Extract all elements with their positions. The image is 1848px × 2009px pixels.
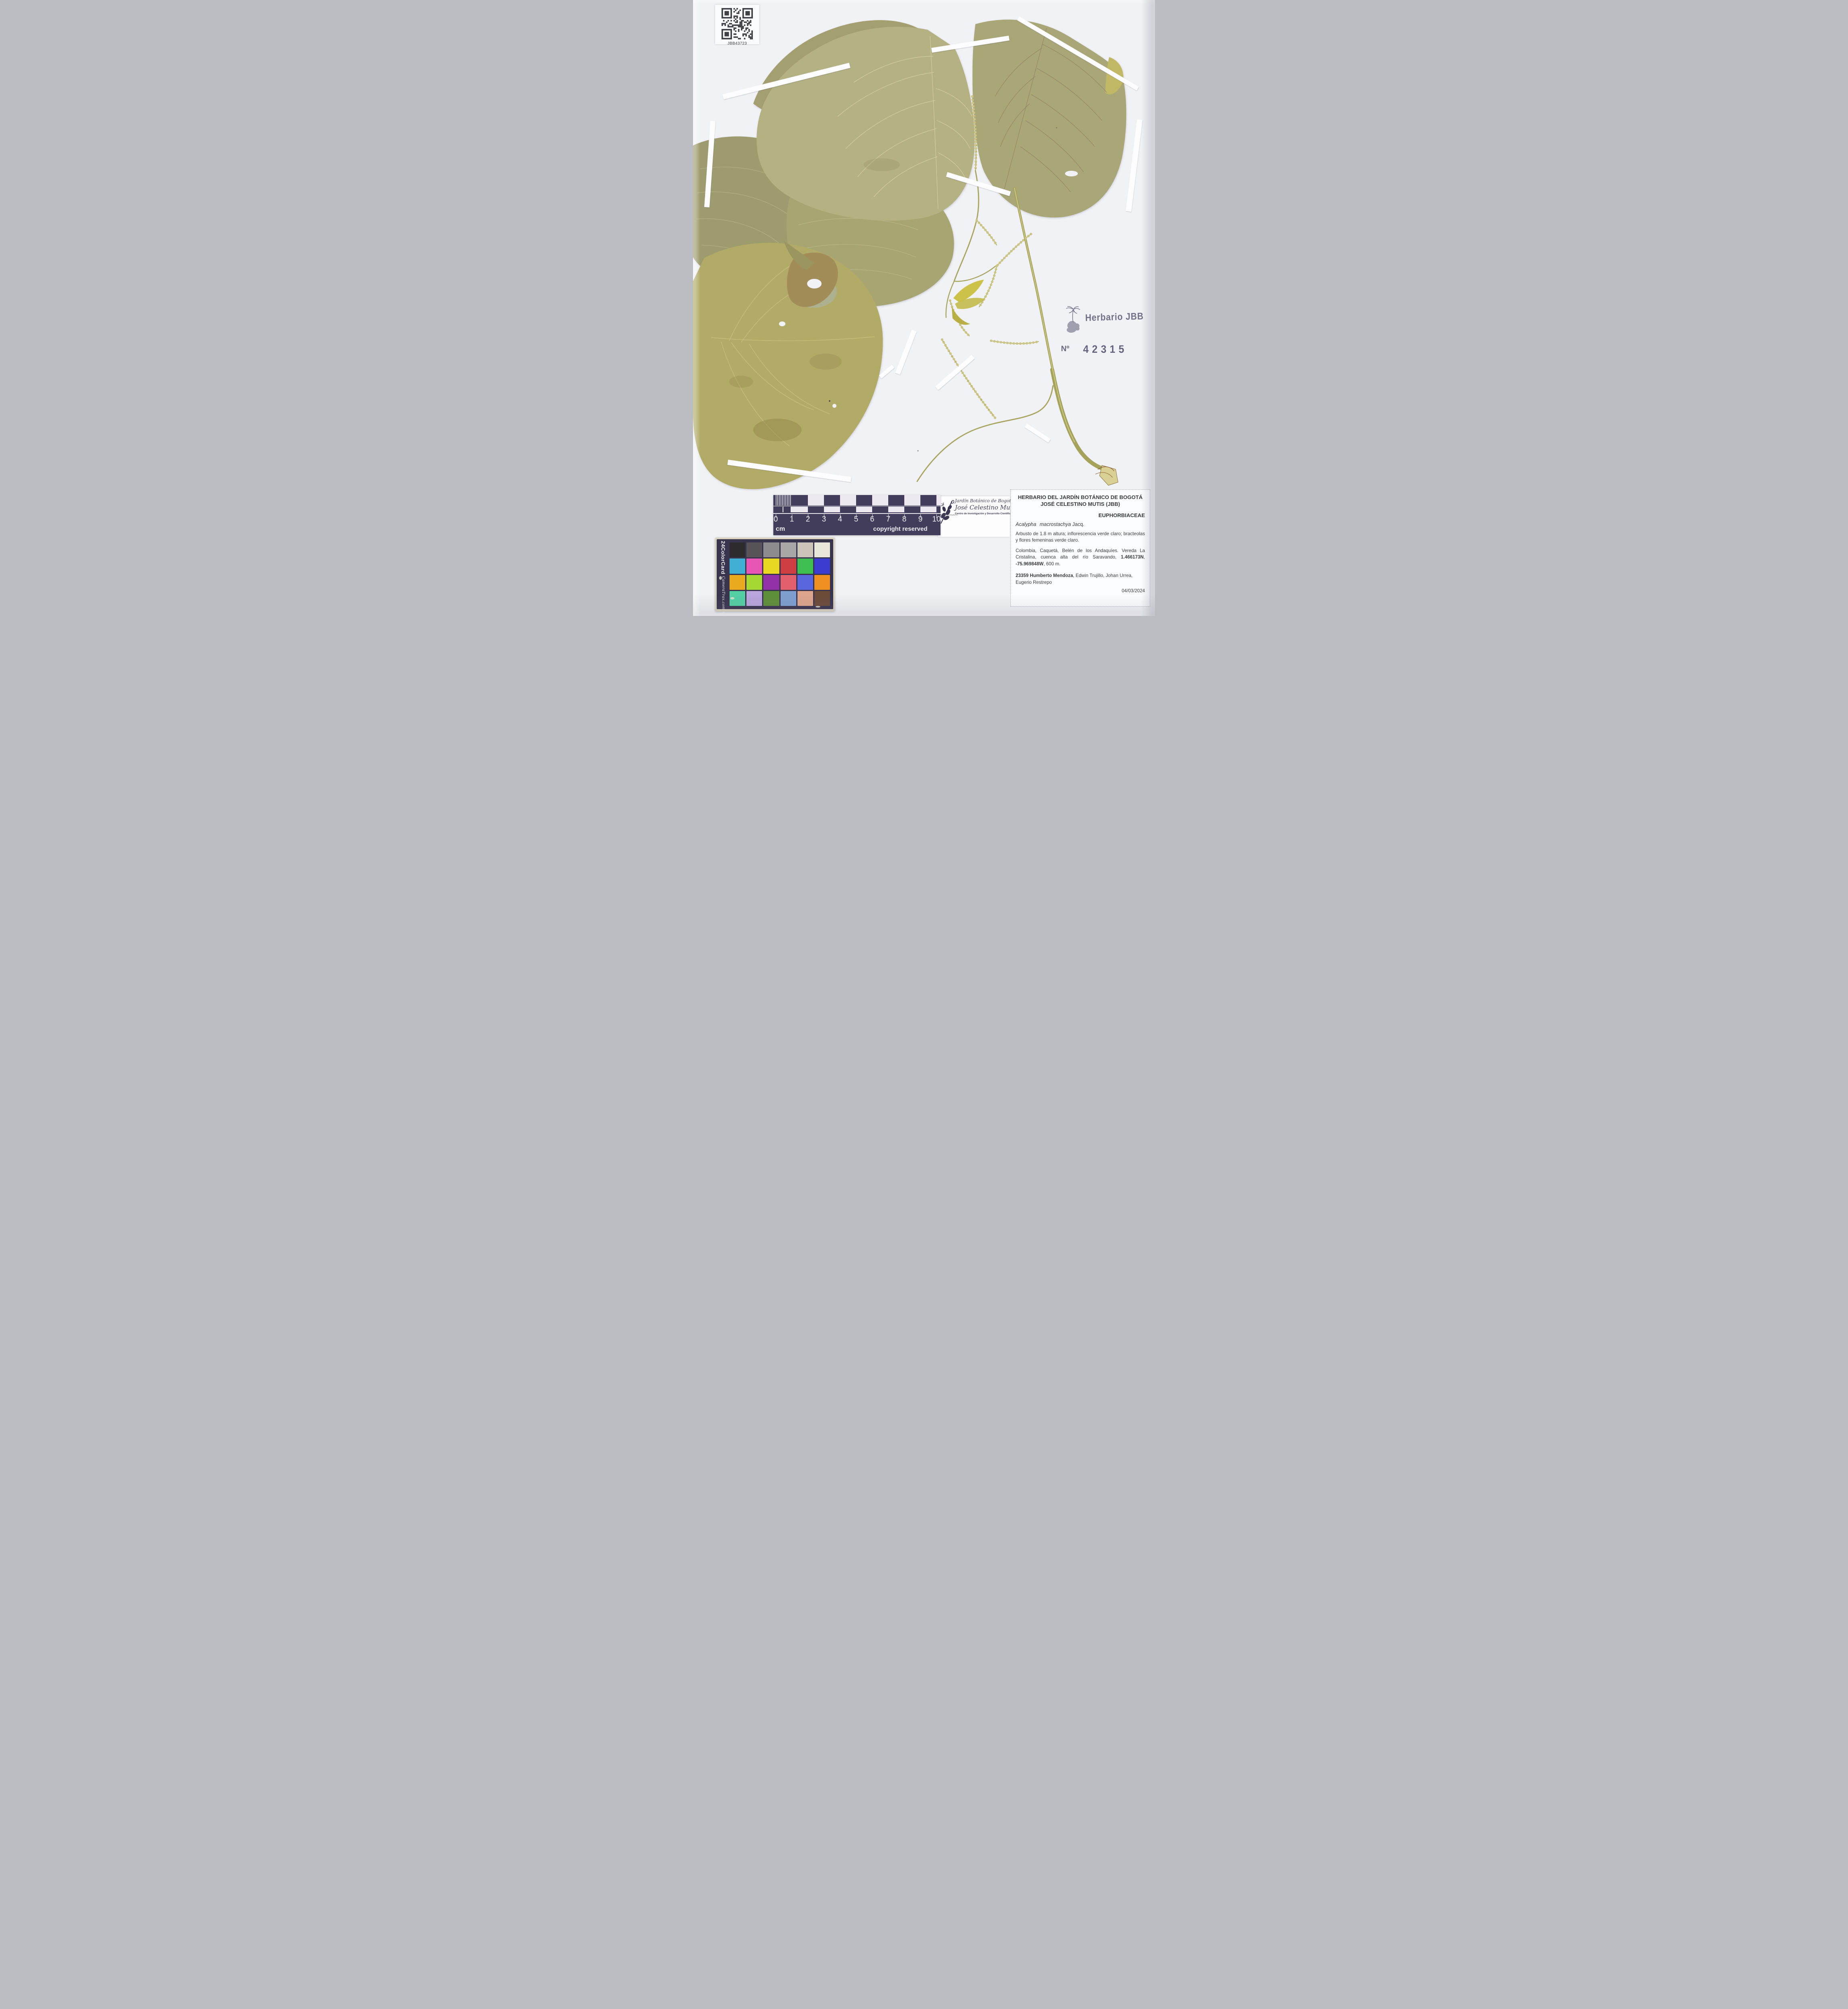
collector-number-name: 23359 Humberto Mendoza bbox=[1016, 573, 1073, 578]
color-swatch bbox=[730, 559, 745, 573]
scale-unit-label: cm bbox=[776, 526, 785, 533]
color-swatch bbox=[730, 542, 745, 557]
scale-number: 8 bbox=[899, 515, 910, 524]
logo-illustration-caption: Mutisia clematis L. bbox=[939, 514, 958, 516]
color-card-title: 24ColorCard bbox=[720, 541, 726, 575]
color-swatch bbox=[746, 559, 762, 573]
color-swatch bbox=[814, 559, 830, 573]
label-description: Arbusto de 1.8 m altura; inflorescencia … bbox=[1016, 531, 1145, 544]
color-swatch bbox=[814, 591, 830, 606]
label-family: EUPHORBIACEAE bbox=[1016, 512, 1145, 518]
color-swatch bbox=[814, 542, 830, 557]
label-species-line: Acalypha macrostachya Jacq. bbox=[1016, 522, 1145, 527]
palm-tree-icon bbox=[1065, 306, 1081, 334]
color-card-brand: CameraTrax.com bbox=[721, 576, 725, 610]
scale-bar-band1 bbox=[773, 495, 940, 505]
color-swatch-grid bbox=[730, 542, 830, 606]
species-name: Acalypha macrostachya bbox=[1016, 522, 1071, 527]
color-swatch bbox=[797, 559, 813, 573]
scale-number: 7 bbox=[883, 515, 893, 524]
tape-strip bbox=[879, 365, 895, 379]
color-swatch bbox=[797, 591, 813, 606]
color-swatch bbox=[746, 575, 762, 590]
institution-logo-card: Jardín Botánico de Bogotá José Celestino… bbox=[938, 496, 1010, 537]
logo-title-line1: Jardín Botánico de Bogotá bbox=[955, 498, 1014, 503]
tape-strip bbox=[1126, 119, 1143, 212]
label-locality: Colombia, Caquetá, Belén de los Andaquíe… bbox=[1016, 548, 1145, 567]
stamp-number: 42315 bbox=[1083, 343, 1127, 356]
herbarium-sheet-scan: JBB43723 Herbario JBB Nº 42315 012345678… bbox=[693, 0, 1155, 616]
label-header-line2: JOSÉ CELESTINO MUTIS (JBB) bbox=[1016, 501, 1145, 507]
determination-label: HERBARIO DEL JARDÍN BOTÁNICO DE BOGOTÁ J… bbox=[1010, 489, 1150, 607]
stamp-number-label: Nº bbox=[1061, 345, 1069, 354]
color-swatch bbox=[730, 575, 745, 590]
color-swatch bbox=[781, 559, 796, 573]
color-swatch bbox=[781, 542, 796, 557]
color-swatch bbox=[763, 591, 779, 606]
scale-number: 5 bbox=[851, 515, 861, 524]
label-collectors: 23359 Humberto Mendoza, Edwin Trujillo, … bbox=[1016, 573, 1145, 586]
latitude-value: 1.466173N bbox=[1121, 554, 1144, 560]
accession-stamp: Herbario JBB Nº 42315 bbox=[1061, 305, 1153, 366]
leaf-tuft-yellow bbox=[952, 280, 985, 325]
scale-number: 1 bbox=[787, 515, 797, 524]
stamp-text: Herbario JBB bbox=[1085, 311, 1144, 324]
scale-number: 9 bbox=[915, 515, 926, 524]
copyright-text: copyright reserved bbox=[852, 526, 949, 532]
color-swatch bbox=[781, 591, 796, 606]
scale-number: 0 bbox=[771, 515, 781, 524]
scale-number: 3 bbox=[819, 515, 829, 524]
tape-strip bbox=[1025, 423, 1051, 442]
color-swatch bbox=[763, 542, 779, 557]
barcode-label: JBB43723 bbox=[715, 5, 759, 44]
tape-strip bbox=[895, 329, 916, 374]
color-swatch bbox=[814, 575, 830, 590]
label-date: 04/03/2024 bbox=[1016, 588, 1145, 593]
tape-strip bbox=[935, 355, 975, 390]
color-swatch bbox=[763, 575, 779, 590]
color-swatch bbox=[746, 542, 762, 557]
logo-subtitle: Centro de Investigación y Desarrollo Cie… bbox=[955, 512, 1012, 515]
qr-code-icon bbox=[722, 8, 753, 39]
label-header-line1: HERBARIO DEL JARDÍN BOTÁNICO DE BOGOTÁ bbox=[1016, 494, 1145, 501]
color-calibration-card: 24ColorCard CameraTrax.com TM bbox=[715, 538, 835, 612]
longitude-value: -75.969848W bbox=[1016, 561, 1044, 567]
scale-number: 6 bbox=[867, 515, 877, 524]
stem-cut-base bbox=[1100, 465, 1118, 485]
barcode-number: JBB43723 bbox=[715, 41, 759, 46]
species-author: Jacq. bbox=[1071, 522, 1084, 527]
color-swatch bbox=[797, 575, 813, 590]
logo-title-line2: José Celestino Mutis bbox=[955, 504, 1018, 511]
trademark-text: TM bbox=[722, 612, 724, 615]
scale-number: 2 bbox=[803, 515, 813, 524]
color-swatch bbox=[746, 591, 762, 606]
color-swatch bbox=[797, 542, 813, 557]
color-swatch bbox=[781, 575, 796, 590]
color-card-side-text: 24ColorCard CameraTrax.com TM bbox=[718, 541, 728, 608]
scale-number: 4 bbox=[835, 515, 845, 524]
scale-bar: 012345678910 cm copyright reserved bbox=[773, 495, 940, 535]
scale-bar-mm-hatch bbox=[776, 495, 792, 505]
color-swatch bbox=[763, 559, 779, 573]
scale-number: 10 bbox=[931, 515, 942, 524]
